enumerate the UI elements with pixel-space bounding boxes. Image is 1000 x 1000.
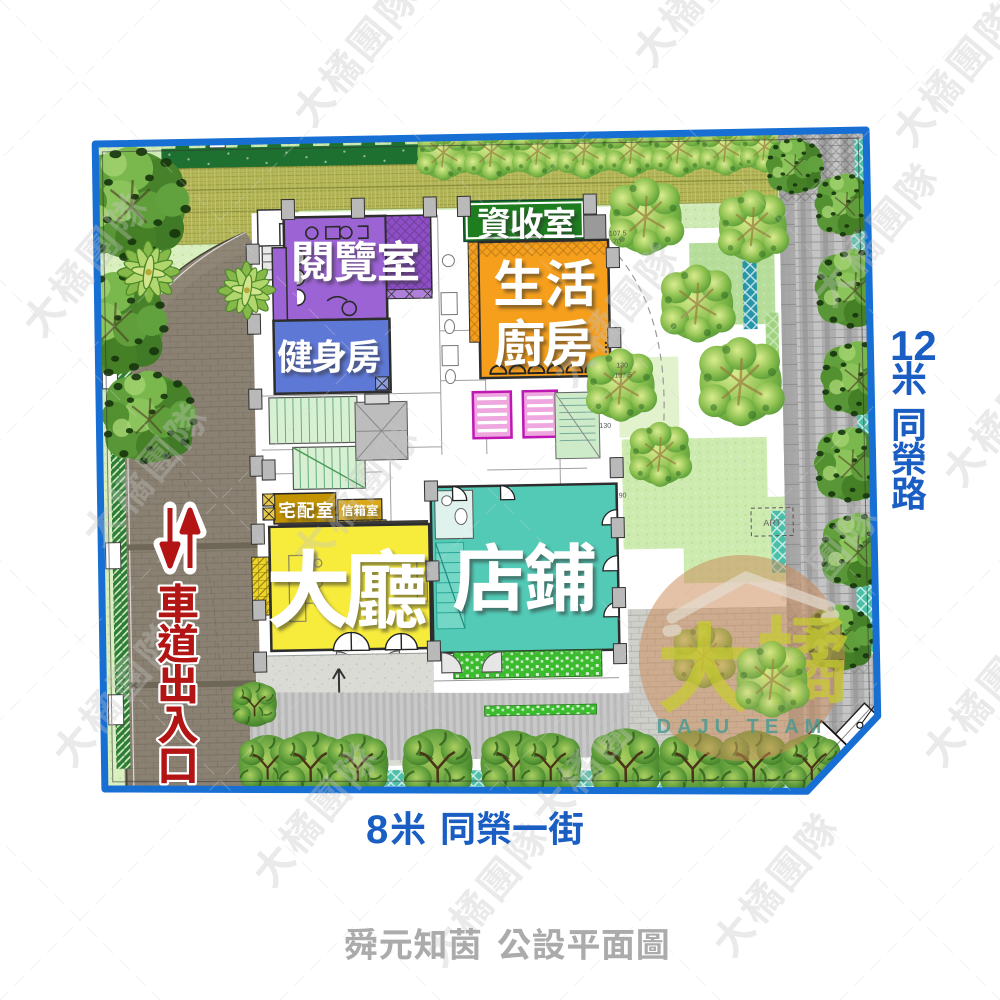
svg-text:ART: ART	[763, 518, 782, 528]
svg-text:107.5: 107.5	[609, 230, 627, 237]
svg-text:130: 130	[599, 423, 611, 430]
svg-text:8: 8	[366, 808, 388, 852]
svg-text:70: 70	[613, 239, 621, 246]
svg-text:90: 90	[619, 492, 627, 499]
svg-text:12: 12	[890, 322, 937, 369]
svg-text:DAJU TEAM: DAJU TEAM	[657, 716, 828, 738]
svg-text:130: 130	[616, 362, 628, 369]
